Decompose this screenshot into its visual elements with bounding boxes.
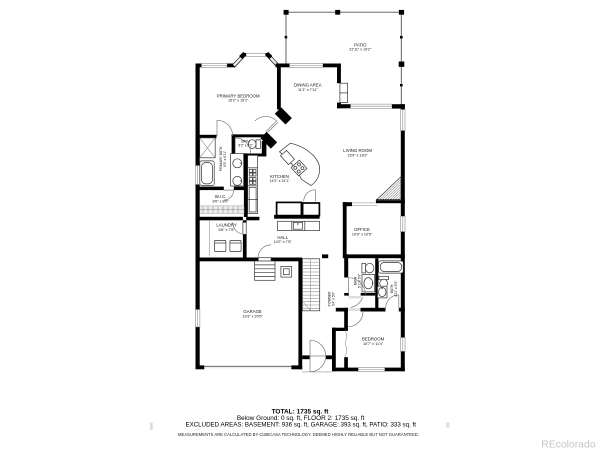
svg-text:PRIMARY BEDROOM: PRIMARY BEDROOM bbox=[217, 93, 260, 98]
svg-text:5'4" x 5'0": 5'4" x 5'0" bbox=[331, 291, 335, 306]
svg-text:5'2" x 8'3": 5'2" x 8'3" bbox=[238, 143, 253, 147]
svg-text:LAUNDRY: LAUNDRY bbox=[216, 223, 237, 228]
svg-text:MEASUREMENTS ARE CALCULATED BY: MEASUREMENTS ARE CALCULATED BY CUBICASA … bbox=[178, 432, 419, 437]
svg-text:8'6" x 8'9": 8'6" x 8'9" bbox=[213, 199, 230, 203]
svg-text:4'11" x 9'5": 4'11" x 9'5" bbox=[394, 280, 398, 297]
svg-text:GARAGE: GARAGE bbox=[243, 309, 262, 314]
svg-text:15'2" x 15'1": 15'2" x 15'1" bbox=[228, 99, 249, 103]
svg-text:W.I.C.: W.I.C. bbox=[215, 194, 227, 199]
svg-text:REcolorado: REcolorado bbox=[541, 439, 596, 450]
svg-text:OFFICE: OFFICE bbox=[354, 227, 370, 232]
svg-text:11'1" x 7'11": 11'1" x 7'11" bbox=[298, 88, 318, 92]
svg-text:6'6" x 7'5": 6'6" x 7'5" bbox=[219, 228, 236, 232]
svg-text:5'1" x 5'0": 5'1" x 5'0" bbox=[358, 273, 362, 288]
svg-text:KITCHEN: KITCHEN bbox=[270, 174, 289, 179]
svg-text:EXCLUDED AREAS: BASEMENT: 936: EXCLUDED AREAS: BASEMENT: 936 sq. ft, GA… bbox=[185, 421, 416, 428]
svg-text:22'11" x 19'2": 22'11" x 19'2" bbox=[349, 48, 372, 52]
svg-text:DINING AREA: DINING AREA bbox=[294, 83, 322, 88]
svg-text:8'5" x 8'11": 8'5" x 8'11" bbox=[223, 150, 227, 167]
svg-text:10'7" x 11'4": 10'7" x 11'4" bbox=[363, 342, 384, 346]
svg-text:14'2" x 21'1": 14'2" x 21'1" bbox=[269, 179, 290, 183]
svg-text:PATIO: PATIO bbox=[354, 42, 367, 47]
svg-text:15'9" x 18'3": 15'9" x 18'3" bbox=[347, 154, 368, 158]
svg-text:19'3" x 20'5": 19'3" x 20'5" bbox=[242, 314, 263, 318]
svg-text:HALL: HALL bbox=[277, 235, 288, 240]
svg-text:14'2" x 7'5": 14'2" x 7'5" bbox=[274, 240, 293, 244]
svg-text:10'9" x 10'5": 10'9" x 10'5" bbox=[352, 232, 373, 236]
svg-text:BEDROOM: BEDROOM bbox=[362, 337, 385, 342]
svg-text:LIVING ROOM: LIVING ROOM bbox=[343, 148, 372, 153]
